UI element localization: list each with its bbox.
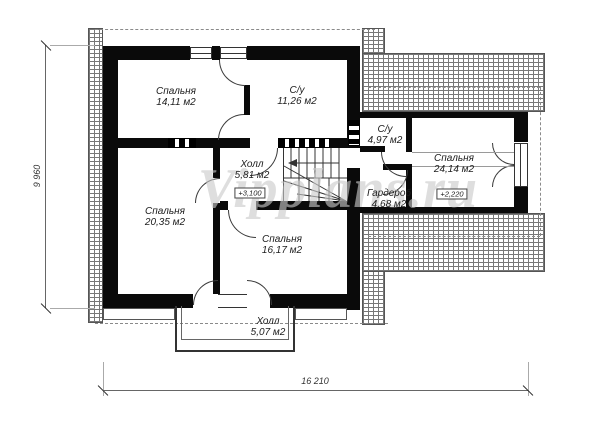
roof-hatch-top-right <box>362 53 545 112</box>
roof-hatch-bottom-right <box>362 213 545 272</box>
dimension-line-left <box>45 45 46 308</box>
door-arc-bedroom1-top <box>219 60 245 86</box>
door-arc-balcony-left <box>193 280 218 305</box>
room-name: Гардероб <box>367 188 411 199</box>
door-arc-balcony-right <box>247 280 272 305</box>
door-arc-bedroom3 <box>228 210 256 238</box>
room-name: С/у <box>368 124 403 135</box>
bathroom2-wall-right <box>406 118 412 152</box>
casement-arc-bottom <box>492 165 514 187</box>
room-label-bedroom-2: Спальня 20,35 м2 <box>145 206 185 228</box>
room-area: 20,35 м2 <box>145 217 185 228</box>
door-arc-bedroom1 <box>218 114 244 140</box>
room-name: С/у <box>277 85 316 96</box>
wall-divider-bed2-a <box>213 148 220 178</box>
roof-edge-dashed-top <box>95 29 375 30</box>
room-label-bedroom-1: Спальня 14,11 м2 <box>156 86 196 108</box>
elevation-mark-bedroom-right: +2,220 <box>436 189 467 200</box>
roof-hatch-top-column <box>362 28 385 54</box>
room-label-bedroom-right: Спальня 24,14 м2 <box>434 153 474 175</box>
dimension-ext-left-top <box>50 45 95 46</box>
wing-wall-right-upper <box>514 118 528 142</box>
room-name: Холл <box>251 316 286 327</box>
eaves-ledge-left <box>103 308 175 320</box>
wing-wall-top <box>360 112 528 118</box>
room-name: Спальня <box>262 234 302 245</box>
wall-left <box>103 46 118 310</box>
roof-edge-dashed-wing-right <box>540 87 541 236</box>
floor-plan: Vipplans.ru Спальня 14,11 м2 С/у 11,26 м… <box>0 0 600 424</box>
casement-arc-top <box>492 143 514 165</box>
wing-wall-right-lower <box>514 187 528 207</box>
window-bedroom-right <box>514 143 528 187</box>
wall-top-c <box>247 46 360 60</box>
wall-right-main-lower <box>347 168 360 310</box>
roof-edge-dashed-wing-top <box>368 87 540 88</box>
window-top-2 <box>220 47 247 59</box>
room-name: Холл <box>235 159 270 170</box>
roof-hatch-bottom-column <box>362 271 385 325</box>
staircase <box>283 148 347 202</box>
dimension-ext-left-bottom <box>50 308 95 309</box>
wall-horizontal-c <box>330 138 347 148</box>
roof-hatch-left <box>88 28 103 323</box>
window-bedroom1 <box>190 47 212 59</box>
room-name: Спальня <box>434 153 474 164</box>
vent-blocks <box>278 138 330 148</box>
room-label-wardrobe: Гардероб 4,68 м2 <box>367 188 411 210</box>
chimney-blocks <box>168 138 196 148</box>
dimension-height-label: 9 960 <box>32 165 42 188</box>
wall-divider-bed1-bath1-a <box>244 85 250 115</box>
room-area: 16,17 м2 <box>262 245 302 256</box>
room-label-bathroom-1: С/у 11,26 м2 <box>277 85 316 107</box>
vent-blocks-vertical <box>348 120 360 146</box>
room-label-bedroom-3: Спальня 16,17 м2 <box>262 234 302 256</box>
elevation-mark-hall: +3,100 <box>234 188 265 199</box>
room-area: 5,81 м2 <box>235 170 270 181</box>
wall-top-b <box>212 46 220 60</box>
room-name: Спальня <box>156 86 196 97</box>
dimension-line-bottom <box>103 390 528 391</box>
room-area: 5,07 м2 <box>251 327 286 338</box>
room-label-hall-upper: Холл 5,81 м2 <box>235 159 270 181</box>
door-arc-bedroom2 <box>195 178 220 203</box>
room-area: 4,68 м2 <box>367 199 411 210</box>
room-area: 14,11 м2 <box>156 97 196 108</box>
roof-edge-dashed-wing-bottom <box>368 236 540 237</box>
room-area: 11,26 м2 <box>277 96 316 107</box>
wall-hall-bed3-b <box>256 201 347 210</box>
room-label-hall-balcony: Холл 5,07 м2 <box>251 316 286 338</box>
room-label-bathroom-2: С/у 4,97 м2 <box>368 124 403 146</box>
room-area: 24,14 м2 <box>434 164 474 175</box>
room-name: Спальня <box>145 206 185 217</box>
room-area: 4,97 м2 <box>368 135 403 146</box>
wall-horizontal-a <box>118 138 168 148</box>
dimension-width-label: 16 210 <box>301 376 329 386</box>
wall-hall-bed3-a <box>220 201 228 210</box>
eaves-ledge-right <box>295 308 347 320</box>
